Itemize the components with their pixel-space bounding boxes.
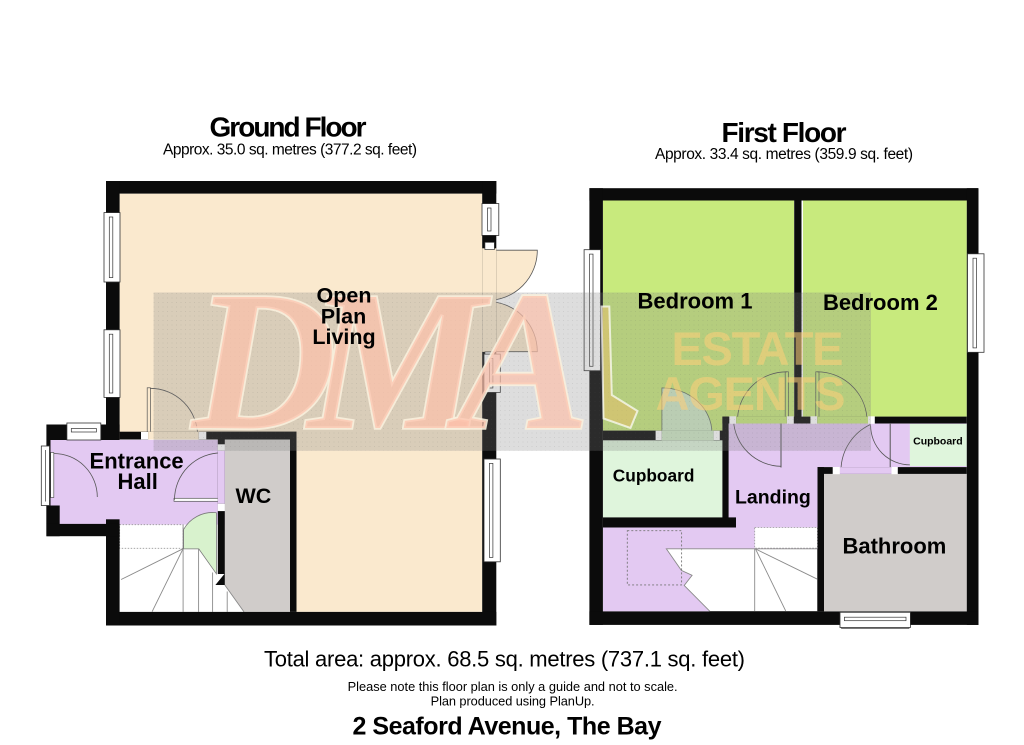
svg-text:2 Seaford Avenue, The Bay: 2 Seaford Avenue, The Bay: [353, 712, 662, 740]
svg-text:WC: WC: [235, 484, 271, 508]
svg-text:Bedroom 2: Bedroom 2: [823, 290, 938, 315]
svg-text:Ground Floor: Ground Floor: [210, 112, 367, 143]
svg-text:Landing: Landing: [735, 486, 811, 508]
svg-text:Cupboard: Cupboard: [613, 466, 695, 486]
svg-text:Approx. 35.0 sq. metres (377.2: Approx. 35.0 sq. metres (377.2 sq. feet): [163, 142, 417, 159]
svg-text:Cupboard: Cupboard: [913, 435, 963, 447]
svg-text:Living: Living: [312, 325, 375, 349]
svg-text:Bathroom: Bathroom: [842, 533, 946, 558]
svg-text:Approx. 33.4 sq. metres (359.9: Approx. 33.4 sq. metres (359.9 sq. feet): [655, 146, 913, 163]
svg-text:Please note this floor plan is: Please note this floor plan is only a gu…: [348, 679, 678, 694]
svg-text:First Floor: First Floor: [722, 117, 847, 148]
svg-text:Hall: Hall: [118, 469, 158, 494]
svg-text:Plan produced using PlanUp.: Plan produced using PlanUp.: [431, 693, 595, 708]
svg-text:DMA: DMA: [190, 251, 590, 472]
svg-text:Total area: approx. 68.5 sq. m: Total area: approx. 68.5 sq. metres (737…: [264, 647, 745, 672]
svg-text:Bedroom 1: Bedroom 1: [638, 289, 753, 314]
svg-text:AGENTS: AGENTS: [656, 367, 846, 420]
